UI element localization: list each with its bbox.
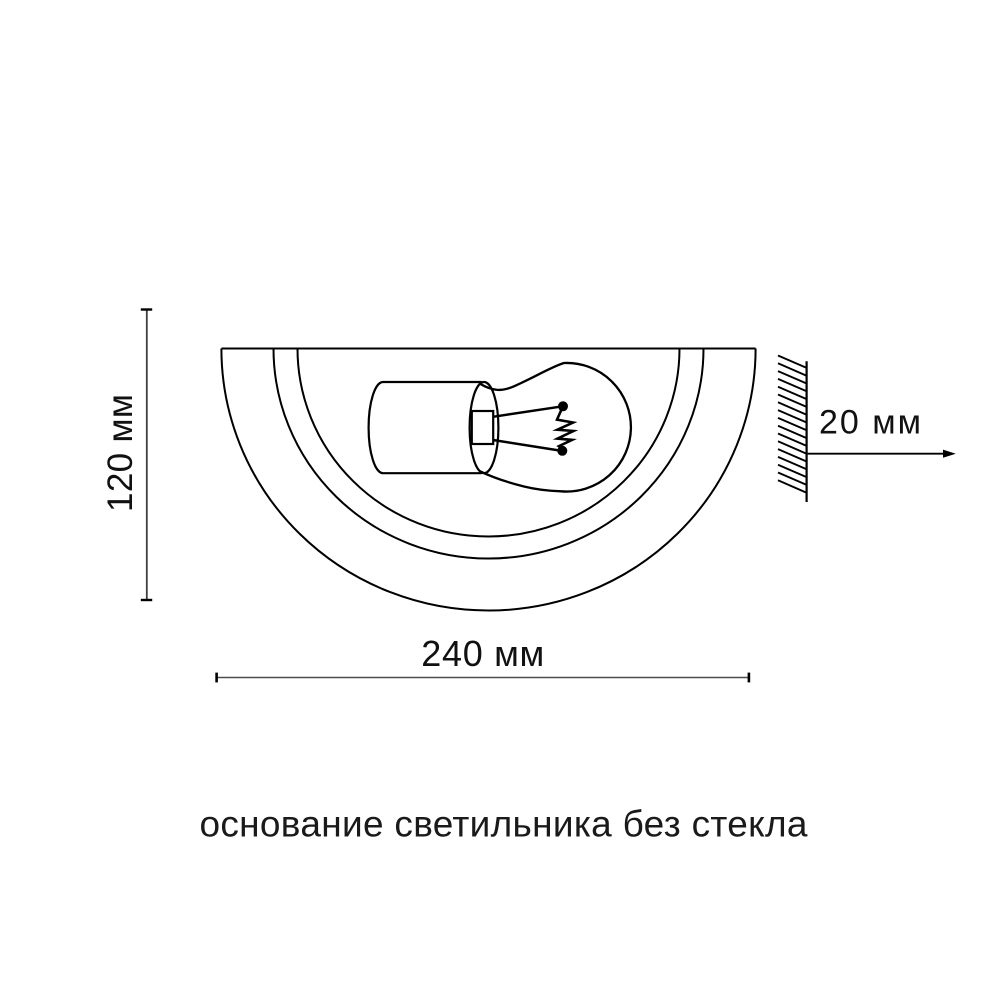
svg-text:240 мм: 240 мм bbox=[421, 633, 544, 674]
svg-text:120 мм: 120 мм bbox=[101, 394, 140, 512]
svg-text:20 мм: 20 мм bbox=[819, 404, 921, 442]
svg-text:основание светильника без стек: основание светильника без стекла bbox=[200, 803, 808, 844]
